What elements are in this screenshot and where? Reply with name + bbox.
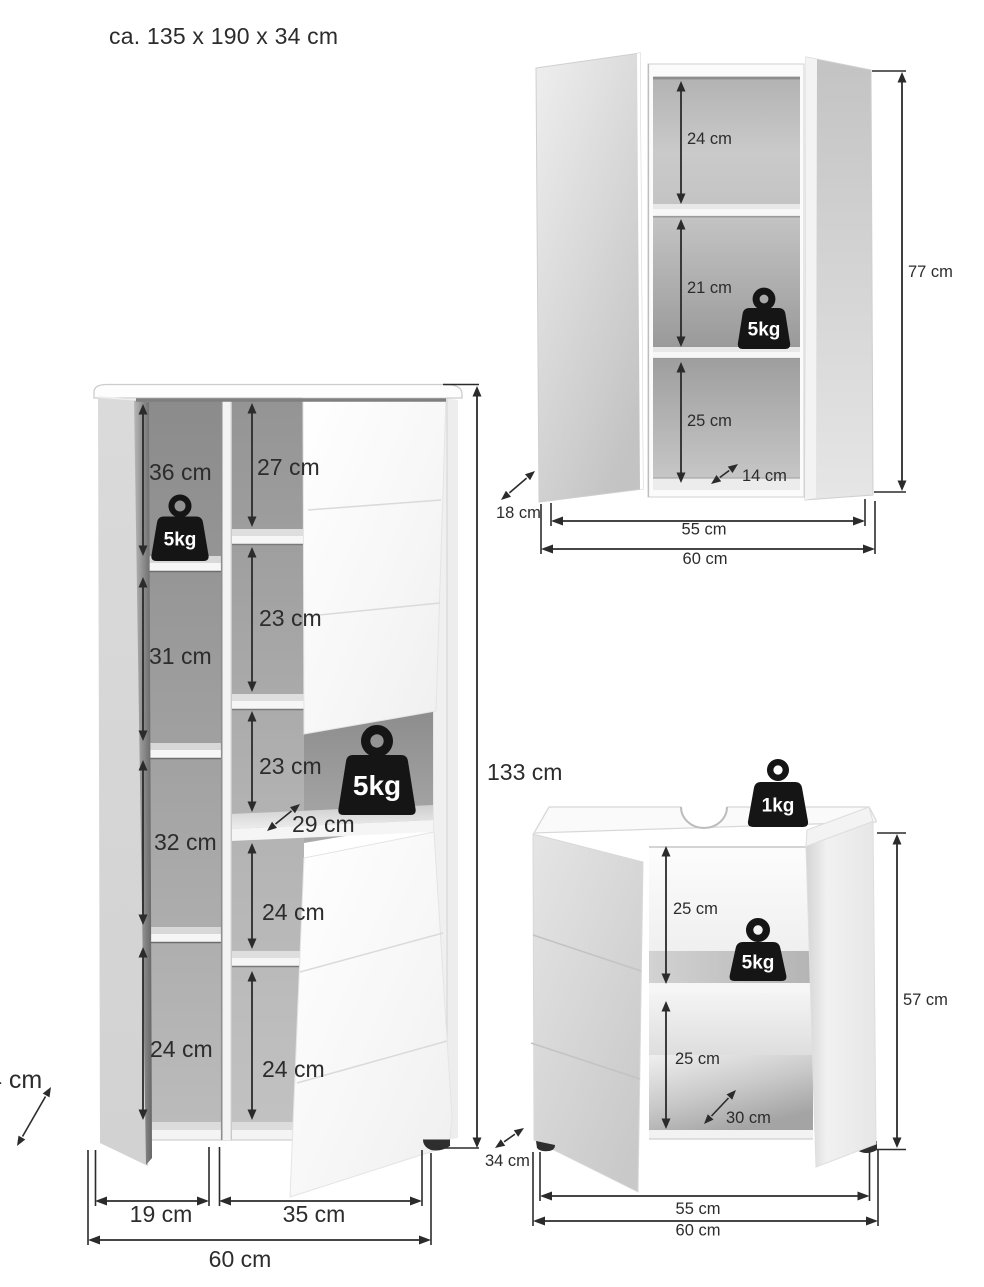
svg-text:5kg: 5kg <box>353 770 401 801</box>
svg-text:24 cm: 24 cm <box>150 1036 213 1062</box>
svg-text:24 cm: 24 cm <box>262 1056 325 1082</box>
svg-text:14 cm: 14 cm <box>742 467 787 485</box>
svg-text:21 cm: 21 cm <box>687 279 732 297</box>
svg-text:24 cm: 24 cm <box>262 899 325 925</box>
svg-text:34 cm: 34 cm <box>485 1152 530 1170</box>
svg-text:32 cm: 32 cm <box>154 829 217 855</box>
svg-text:23 cm: 23 cm <box>259 605 322 631</box>
svg-text:35 cm: 35 cm <box>283 1201 346 1227</box>
svg-text:31 cm: 31 cm <box>149 643 212 669</box>
svg-text:36 cm: 36 cm <box>149 459 212 485</box>
svg-text:ca. 135 x 190 x 34 cm: ca. 135 x 190 x 34 cm <box>109 23 338 49</box>
svg-text:60 cm: 60 cm <box>683 550 728 568</box>
svg-text:57 cm: 57 cm <box>903 991 948 1009</box>
svg-text:23 cm: 23 cm <box>259 753 322 779</box>
svg-text:5kg: 5kg <box>164 530 197 551</box>
svg-text:55 cm: 55 cm <box>676 1200 721 1218</box>
svg-text:19 cm: 19 cm <box>130 1201 193 1227</box>
svg-text:25 cm: 25 cm <box>675 1050 720 1068</box>
svg-text:133 cm: 133 cm <box>487 759 562 785</box>
svg-text:18 cm: 18 cm <box>496 504 541 522</box>
svg-text:60 cm: 60 cm <box>209 1246 272 1272</box>
svg-text:5kg: 5kg <box>742 952 775 973</box>
svg-text:25 cm: 25 cm <box>673 900 718 918</box>
svg-text:29 cm: 29 cm <box>292 811 355 837</box>
svg-text:27 cm: 27 cm <box>257 454 320 480</box>
svg-text:55 cm: 55 cm <box>682 521 727 539</box>
svg-text:24 cm: 24 cm <box>687 130 732 148</box>
svg-text:30 cm: 30 cm <box>726 1109 771 1127</box>
svg-text:4 cm: 4 cm <box>0 1066 42 1094</box>
svg-text:25 cm: 25 cm <box>687 412 732 430</box>
svg-text:60 cm: 60 cm <box>676 1222 721 1240</box>
svg-text:77 cm: 77 cm <box>908 263 953 281</box>
svg-text:1kg: 1kg <box>762 795 795 816</box>
svg-text:5kg: 5kg <box>748 319 781 340</box>
